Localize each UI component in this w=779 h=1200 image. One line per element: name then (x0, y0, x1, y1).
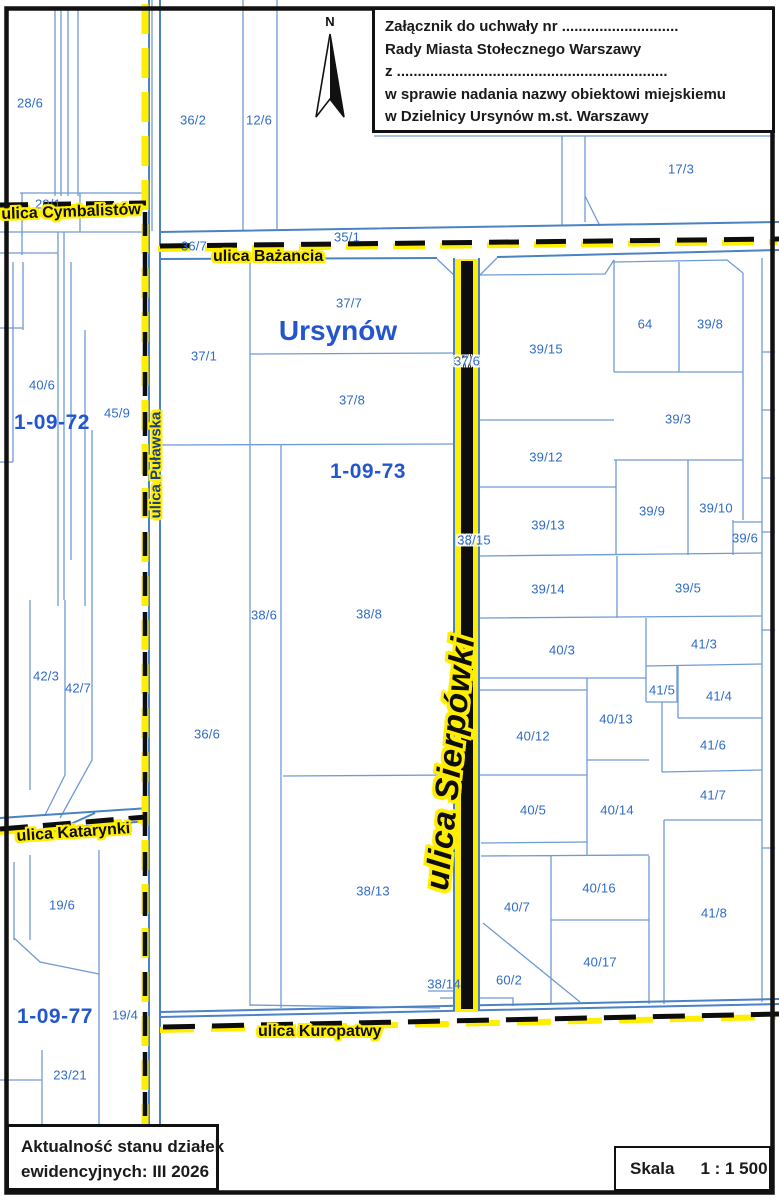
parcel-label: 37/8 (339, 393, 365, 408)
parcel-label: 37/7 (336, 296, 362, 311)
parcel-label: 40/14 (600, 803, 634, 818)
parcel-label: 39/10 (699, 501, 733, 516)
parcel-label: 28/6 (17, 96, 43, 111)
north-arrow: N (316, 14, 344, 117)
parcel-label: 39/8 (697, 317, 723, 332)
district-label: 1-09-72 (14, 411, 90, 435)
parcel-label: 38/6 (251, 608, 277, 623)
street-label-pulawska: ulica Puławska (148, 412, 165, 519)
street-label-bazancia: ulica Bażancia (213, 248, 323, 266)
parcel-label: 19/4 (112, 1008, 138, 1023)
annotation-line: w sprawie nadania nazwy obiektowi miejsk… (385, 84, 772, 107)
parcel-label: 38/13 (356, 884, 390, 899)
parcel-label: 60/2 (496, 973, 522, 988)
north-arrow-label: N (325, 14, 334, 29)
parcel-label: 39/12 (529, 450, 563, 465)
parcel-label: 12/6 (246, 113, 272, 128)
parcel-label: 39/15 (529, 342, 563, 357)
parcel-label: 42/3 (33, 669, 59, 684)
parcel-label: 36/7 (181, 239, 207, 254)
district-label: 1-09-73 (330, 460, 406, 484)
parcel-label: 19/6 (49, 898, 75, 913)
parcel-label: 40/17 (583, 955, 617, 970)
scale-label: Skala (630, 1159, 674, 1179)
parcel-label: 37/6 (454, 354, 480, 369)
cadastral-map: N Ursynów 1-09-721-09-731-09-77 28/629/1… (0, 0, 779, 1200)
annotation-line: Rady Miasta Stołecznego Warszawy (385, 39, 772, 62)
parcel-label: 45/9 (104, 406, 130, 421)
parcel-label: 40/5 (520, 803, 546, 818)
parcel-label: 40/6 (29, 378, 55, 393)
parcel-label: 38/8 (356, 607, 382, 622)
parcel-label: 17/3 (668, 162, 694, 177)
parcel-label: 37/1 (191, 349, 217, 364)
street-label-kuropatwy: ulica Kuropatwy (258, 1023, 382, 1041)
annotation-line: z ......................................… (385, 61, 772, 84)
parcel-boundaries (0, 0, 775, 1124)
parcel-label: 39/13 (531, 518, 565, 533)
parcel-label: 40/3 (549, 643, 575, 658)
parcel-label: 41/8 (701, 906, 727, 921)
parcel-label: 36/6 (194, 727, 220, 742)
parcel-label: 41/3 (691, 637, 717, 652)
parcel-label: 41/4 (706, 689, 732, 704)
parcel-label: 39/6 (732, 531, 758, 546)
parcel-label: 40/7 (504, 900, 530, 915)
scale-box: Skala 1 : 1 500 (614, 1146, 771, 1191)
data-currency-box: Aktualność stanu działek ewidencyjnych: … (6, 1124, 219, 1191)
parcel-label: 23/21 (53, 1068, 87, 1083)
parcel-label: 40/12 (516, 729, 550, 744)
parcel-label: 35/1 (334, 230, 360, 245)
data-currency-line: ewidencyjnych: III 2026 (21, 1159, 216, 1184)
scale-value: 1 : 1 500 (700, 1159, 767, 1179)
street-highlights (0, 4, 777, 1128)
parcel-label: 38/15 (457, 533, 491, 548)
road-edges (0, 0, 779, 1124)
parcel-label: 42/7 (65, 681, 91, 696)
parcel-label: 40/16 (582, 881, 616, 896)
parcel-label: 41/5 (649, 683, 675, 698)
annotation-line: Załącznik do uchwały nr ................… (385, 16, 772, 39)
parcel-label: 41/7 (700, 788, 726, 803)
region-label: Ursynów (279, 315, 397, 347)
parcel-label: 41/6 (700, 738, 726, 753)
annotation-line: w Dzielnicy Ursynów m.st. Warszawy (385, 106, 772, 129)
parcel-label: 39/5 (675, 581, 701, 596)
parcel-label: 40/13 (599, 712, 633, 727)
parcel-label: 39/14 (531, 582, 565, 597)
parcel-label: 38/14 (427, 977, 461, 992)
parcel-label: 39/9 (639, 504, 665, 519)
parcel-label: 36/2 (180, 113, 206, 128)
data-currency-line: Aktualność stanu działek (21, 1134, 216, 1159)
parcel-label: 64 (638, 317, 653, 332)
district-label: 1-09-77 (17, 1005, 93, 1029)
parcel-label: 39/3 (665, 412, 691, 427)
annotation-box: Załącznik do uchwały nr ................… (372, 7, 775, 133)
street-sierpowki-centerline (461, 261, 473, 1009)
